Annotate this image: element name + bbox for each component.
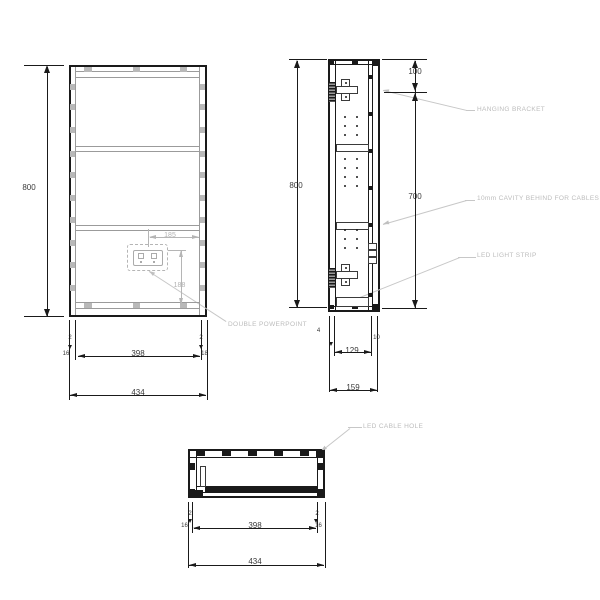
drawing-line (76, 308, 199, 309)
drawing-line (76, 146, 199, 147)
dimension-arrow (179, 298, 183, 305)
leader-led-strip-tail (458, 257, 476, 258)
drawing-block (84, 67, 92, 72)
dimension-arrow (294, 60, 300, 68)
dim-front-height: 800 (18, 184, 40, 193)
pin-hole-dot (344, 134, 346, 136)
drawing-line (194, 528, 316, 529)
dimension-arrow (193, 354, 200, 358)
pin-hole-dot (356, 229, 358, 231)
powerpoint-switch-left (138, 253, 144, 259)
drawing-line (69, 320, 70, 400)
drawing-line (325, 502, 326, 568)
callout-cable-hole: LED CABLE HOLE (363, 423, 423, 431)
pin-hole-dot (344, 116, 346, 118)
drawing-outline (368, 243, 377, 250)
powerpoint-pin-right (153, 261, 155, 263)
drawing-block (373, 61, 378, 66)
dimension-arrow (335, 350, 342, 354)
drawing-block (70, 151, 75, 157)
drawing-block (196, 450, 205, 456)
pin-hole-dot (356, 134, 358, 136)
drawing-block (70, 127, 75, 133)
drawing-block (200, 127, 205, 133)
dimension-arrow (412, 60, 418, 68)
dimension-arrow (44, 65, 50, 73)
drawing-line (382, 308, 427, 309)
dim-front-gap-left: 2 (66, 335, 74, 341)
drawing-line (75, 320, 76, 360)
drawing-block (200, 195, 205, 201)
drawing-block (200, 217, 205, 223)
drawing-block (222, 450, 231, 456)
drawing-line (190, 457, 323, 458)
dimension-arrow (412, 300, 418, 308)
dimension-arrow (199, 393, 206, 397)
drawing-outline (368, 250, 377, 257)
dim-side-height: 800 (284, 182, 308, 191)
dimension-arrow (78, 354, 85, 358)
dimension-arrow (412, 93, 418, 101)
dimension-arrow (193, 526, 200, 530)
drawing-block (84, 303, 92, 308)
drawing-block (352, 61, 358, 65)
dimension-arrow (68, 345, 72, 349)
drawing-block (200, 172, 205, 178)
pin-hole-dot (344, 238, 346, 240)
pin-hole-dot (356, 167, 358, 169)
pin-hole-dot (345, 96, 347, 98)
dimension-arrow (412, 83, 418, 91)
drawing-line (207, 320, 208, 400)
drawing-block (318, 463, 324, 470)
drawing-block (369, 293, 372, 297)
pin-hole-dot (356, 238, 358, 240)
dim-side-total-depth: 159 (341, 384, 365, 393)
drawing-block (70, 172, 75, 178)
pin-hole-dot (344, 185, 346, 187)
drawing-block (189, 490, 203, 497)
dimension-arrow (189, 563, 196, 567)
powerpoint-pin-left (140, 261, 142, 263)
dim-socket-x: 185 (159, 232, 181, 240)
front-view-outline (69, 65, 207, 317)
leader-hanging-bracket (383, 90, 467, 111)
drawing-line (168, 250, 186, 251)
drawing-block (330, 61, 334, 65)
dimension-arrow (192, 235, 199, 239)
drawing-block (369, 223, 372, 227)
dimension-arrow (314, 519, 318, 523)
drawing-block (373, 304, 378, 310)
drawing-block (200, 84, 205, 90)
pin-hole-dot (356, 158, 358, 160)
drawing-block (70, 240, 75, 246)
drawing-line (76, 77, 199, 78)
pin-hole-dot (345, 82, 347, 84)
drawing-block (316, 450, 324, 457)
drawing-line (76, 230, 199, 231)
dimension-arrow (149, 235, 156, 239)
drawing-block (70, 195, 75, 201)
drawing-block (318, 489, 324, 496)
drawing-line (76, 151, 199, 152)
drawing-line (189, 565, 324, 566)
dim-bottom-inner-width: 398 (242, 522, 268, 531)
dimension-arrow (179, 250, 183, 257)
drawing-block (200, 262, 205, 268)
drawing-block (70, 285, 75, 291)
dimension-arrow (309, 526, 316, 530)
dimension-arrow (44, 309, 50, 317)
drawing-block (200, 151, 205, 157)
leader-cavity (383, 200, 467, 225)
drawing-block (300, 450, 309, 456)
drawing-block (70, 84, 75, 90)
dimension-arrow (329, 342, 333, 346)
drawing-outline (336, 297, 369, 307)
pin-hole-dot (344, 229, 346, 231)
dim-bottom-panel-left: 16 (178, 523, 191, 529)
drawing-block (330, 305, 334, 309)
dim-side-front-gap: 4 (314, 328, 323, 334)
drawing-line (297, 61, 298, 307)
pin-hole-dot (344, 247, 346, 249)
leader-arrow-cavity (382, 220, 389, 225)
drawing-outline (200, 466, 206, 487)
dim-front-total-width: 434 (125, 389, 151, 398)
pin-hole-dot (345, 281, 347, 283)
drawing-block (133, 303, 140, 308)
drawing-block (200, 285, 205, 291)
drawing-line (78, 356, 200, 357)
drawing-block (369, 186, 372, 190)
technical-drawing-canvas: 800 2 2 16 18 398 434 185 188 800 100 70… (0, 0, 600, 600)
drawing-outline (336, 144, 369, 152)
drawing-line (317, 502, 318, 533)
drawing-block (70, 217, 75, 223)
dimension-arrow (370, 388, 377, 392)
drawing-line (181, 250, 182, 305)
drawing-line (47, 67, 48, 316)
drawing-line (70, 395, 206, 396)
drawing-block (248, 450, 257, 456)
pin-hole-dot (344, 176, 346, 178)
drawing-block (205, 487, 317, 492)
drawing-line (382, 59, 427, 60)
pin-hole-dot (356, 116, 358, 118)
leader-cavity-tail (465, 200, 475, 201)
pin-hole-dot (344, 125, 346, 127)
dimension-arrow (70, 393, 77, 397)
dimension-arrow (294, 300, 300, 308)
drawing-block (369, 75, 372, 79)
dimension-arrow (199, 345, 203, 349)
pin-hole-dot (344, 158, 346, 160)
drawing-block (180, 67, 187, 72)
drawing-line (329, 316, 330, 392)
pin-hole-dot (356, 247, 358, 249)
drawing-line (201, 320, 202, 360)
drawing-block (274, 450, 283, 456)
dim-front-panel-left: 16 (59, 351, 73, 357)
drawing-line (75, 67, 76, 315)
drawing-block (200, 240, 205, 246)
leader-hanging-bracket-tail (466, 110, 475, 111)
drawing-block (70, 104, 75, 110)
drawing-block (70, 262, 75, 268)
drawing-block (133, 67, 140, 72)
drawing-block (369, 149, 372, 153)
powerpoint-switch-right (151, 253, 157, 259)
drawing-block (200, 104, 205, 110)
drawing-block (369, 112, 372, 116)
dimension-arrow (330, 388, 337, 392)
pin-hole-dot (356, 176, 358, 178)
callout-hanging-bracket: HANGING BRACKET (477, 106, 545, 114)
pin-hole-dot (356, 125, 358, 127)
drawing-outline (336, 222, 369, 230)
pin-hole-dot (344, 167, 346, 169)
dimension-arrow (317, 563, 324, 567)
dimension-arrow (188, 519, 192, 523)
dimension-arrow (364, 350, 371, 354)
drawing-line (188, 502, 189, 568)
drawing-line (76, 225, 199, 226)
callout-led-strip: LED LIGHT STRIP (477, 252, 537, 260)
drawing-block (189, 463, 195, 470)
drawing-line (196, 492, 317, 493)
drawing-line (377, 316, 378, 392)
drawing-line (372, 61, 373, 310)
drawing-outline (368, 257, 377, 264)
pin-hole-dot (345, 267, 347, 269)
callout-powerpoint: DOUBLE POWERPOINT (228, 321, 307, 329)
drawing-line (371, 316, 372, 356)
dim-front-inner-width: 398 (125, 350, 151, 359)
callout-cavity: 10mm CAVITY BEHIND FOR CABLES (477, 195, 599, 203)
pin-hole-dot (356, 185, 358, 187)
leader-cable-hole-tail (348, 427, 362, 428)
drawing-line (384, 92, 427, 93)
